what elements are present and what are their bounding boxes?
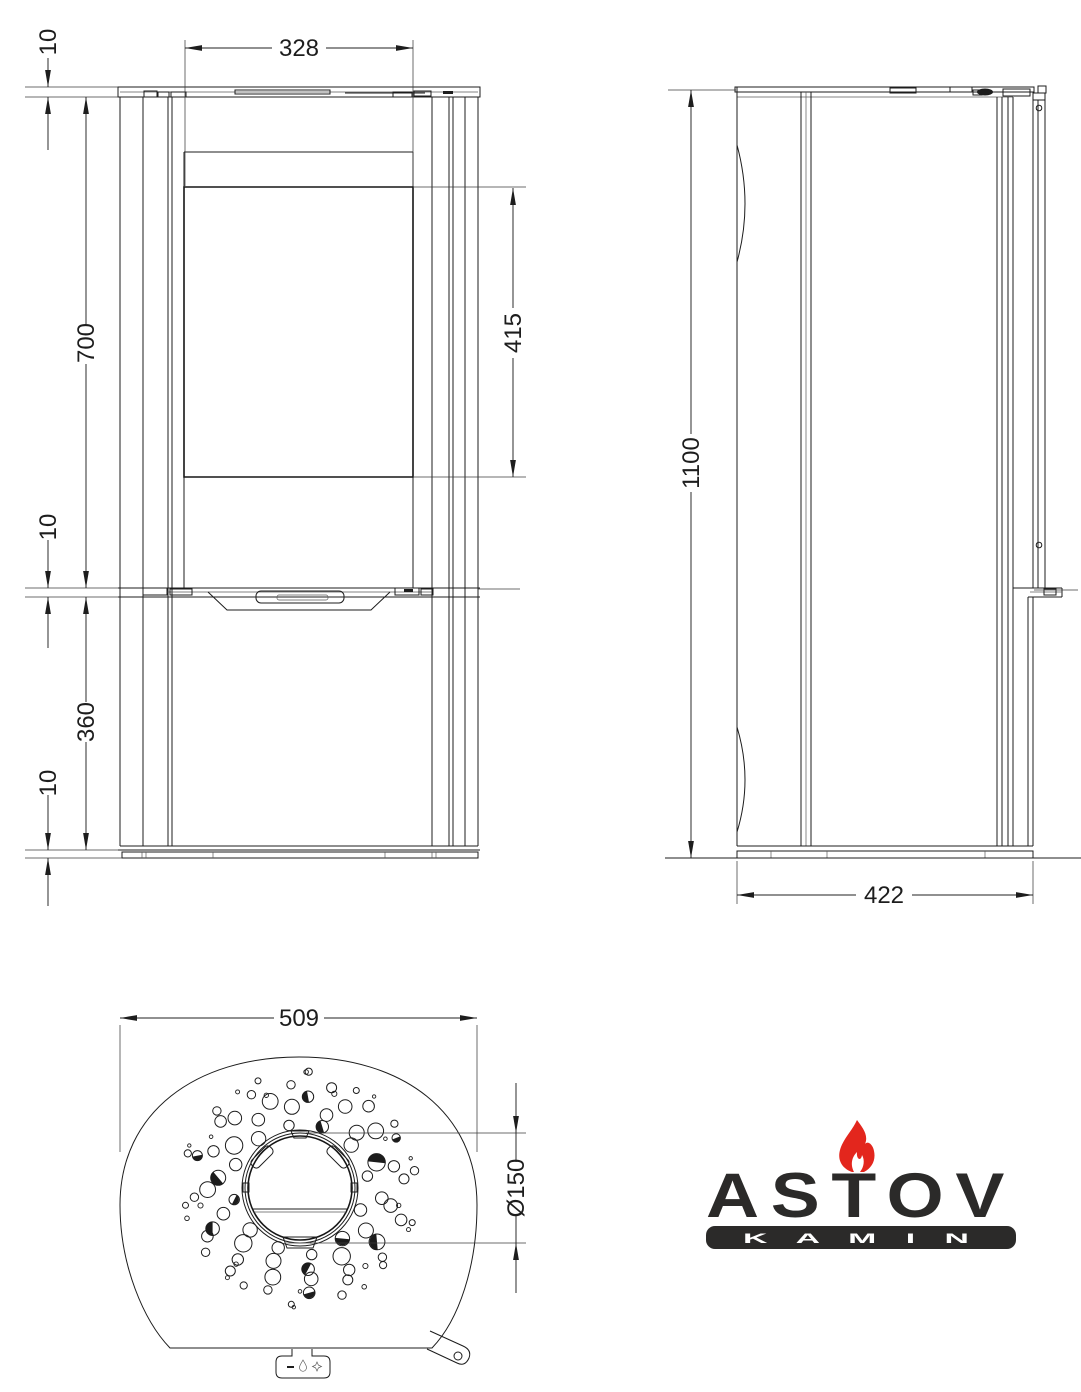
side-view bbox=[735, 86, 1062, 858]
dimension-arrow-icon bbox=[737, 892, 754, 898]
dim-lower-section: 360 bbox=[73, 702, 100, 742]
dim-top-plate: 10 bbox=[35, 29, 62, 56]
front-glass-window bbox=[184, 187, 413, 477]
side-door-edge bbox=[1033, 86, 1046, 588]
dimension-arrow-icon bbox=[45, 70, 51, 87]
vent-hole bbox=[353, 1088, 359, 1094]
dim-width: 509 bbox=[279, 1005, 319, 1032]
vent-hole bbox=[198, 1203, 203, 1208]
vent-hole bbox=[384, 1137, 388, 1141]
vent-hole bbox=[266, 1253, 281, 1268]
air-plus-icon bbox=[313, 1362, 322, 1371]
vent-hole bbox=[185, 1216, 190, 1221]
air-minus-icon bbox=[287, 1366, 294, 1368]
vent-hole bbox=[384, 1199, 398, 1213]
logo-subtitle-text: K A M I N bbox=[743, 1231, 979, 1246]
front-base bbox=[118, 846, 480, 858]
dimension-arrow-icon bbox=[45, 858, 51, 875]
vent-hole bbox=[264, 1286, 272, 1294]
dimension-arrow-icon bbox=[185, 45, 202, 51]
dimension-arrow-icon bbox=[83, 833, 89, 850]
vent-hole bbox=[247, 1091, 255, 1099]
flue-collar bbox=[242, 1130, 358, 1248]
vent-hole bbox=[284, 1120, 294, 1130]
dimension-arrows bbox=[45, 45, 1033, 1260]
dimension-arrow-icon bbox=[83, 97, 89, 114]
vent-hole bbox=[228, 1111, 242, 1125]
vent-hole bbox=[252, 1113, 265, 1126]
vent-hole bbox=[240, 1282, 247, 1289]
dimension-arrow-icon bbox=[513, 1116, 519, 1133]
vent-hole bbox=[298, 1290, 302, 1294]
dimension-arrow-icon bbox=[510, 460, 516, 477]
dimension-arrow-icon bbox=[688, 841, 694, 858]
vent-hole bbox=[320, 1109, 333, 1122]
vent-hole bbox=[288, 1301, 294, 1307]
front-top-plate-details bbox=[144, 90, 431, 97]
door-screw-icon bbox=[1036, 542, 1042, 548]
side-curved-seams bbox=[737, 145, 745, 832]
dim-flue-diameter: Ø150 bbox=[503, 1159, 530, 1218]
front-latch-mark bbox=[443, 91, 453, 94]
dimension-arrow-icon bbox=[513, 1243, 519, 1260]
dimension-arrow-icon bbox=[45, 597, 51, 614]
vent-hole bbox=[399, 1174, 409, 1184]
vent-hole bbox=[391, 1120, 398, 1127]
vent-hole bbox=[208, 1146, 219, 1157]
vent-hole bbox=[344, 1264, 355, 1275]
vent-hole bbox=[255, 1078, 261, 1084]
dimension-arrow-icon bbox=[396, 45, 413, 51]
mounting-tab bbox=[427, 1331, 470, 1364]
vent-hole bbox=[410, 1167, 418, 1175]
dimension-arrow-icon bbox=[1016, 892, 1033, 898]
vent-hole bbox=[362, 1285, 367, 1290]
dimension-arrow-icon bbox=[460, 1015, 477, 1021]
vent-hole bbox=[378, 1253, 386, 1261]
vent-hole bbox=[235, 1235, 252, 1252]
side-base bbox=[737, 846, 1033, 858]
vent-hole bbox=[183, 1202, 189, 1208]
side-front-wall bbox=[997, 97, 1013, 846]
dim-glass-height: 415 bbox=[500, 313, 527, 353]
dim-depth: 422 bbox=[864, 882, 904, 909]
vent-hole bbox=[409, 1157, 412, 1160]
vent-hole bbox=[372, 1095, 375, 1098]
vent-hole bbox=[354, 1204, 366, 1216]
dimension-arrow-icon bbox=[120, 1015, 137, 1021]
vent-hole bbox=[251, 1132, 265, 1146]
vent-hole bbox=[409, 1220, 415, 1226]
vent-hole bbox=[225, 1137, 242, 1154]
tab-hole-icon bbox=[454, 1352, 462, 1360]
vent-hole bbox=[230, 1158, 242, 1170]
vent-hole bbox=[201, 1248, 209, 1256]
dim-glass-width: 328 bbox=[279, 35, 319, 62]
vent-hole bbox=[236, 1090, 240, 1094]
flame-symbol-icon bbox=[300, 1360, 307, 1371]
vent-hole bbox=[184, 1150, 191, 1157]
vent-hole bbox=[272, 1242, 284, 1254]
dimension-arrow-icon bbox=[83, 597, 89, 614]
dim-total-height: 1100 bbox=[678, 437, 705, 489]
dimension-arrow-icon bbox=[45, 833, 51, 850]
vent-hole bbox=[363, 1263, 368, 1268]
extension-lines bbox=[25, 40, 1078, 1243]
vent-hole bbox=[217, 1207, 230, 1220]
vent-hole bbox=[343, 1275, 353, 1285]
dimension-arrow-icon bbox=[510, 188, 516, 205]
vent-hole-hatch bbox=[368, 1154, 385, 1163]
technical-drawing: 328 10 700 10 360 10 415 1100 422 509 Ø1… bbox=[0, 0, 1081, 1392]
vent-hole bbox=[338, 1100, 352, 1114]
dim-shelf: 10 bbox=[35, 514, 62, 541]
vent-hole bbox=[262, 1094, 278, 1110]
brand-logo: ASTOV K A M I N bbox=[706, 1120, 1016, 1249]
logo-brand-text: ASTOV bbox=[706, 1161, 1016, 1231]
vent-hole bbox=[225, 1266, 235, 1276]
vent-hole bbox=[190, 1193, 198, 1201]
dimension-arrow-icon bbox=[688, 90, 694, 107]
vent-hole bbox=[287, 1081, 295, 1089]
dimension-lines bbox=[48, 48, 1033, 1293]
vent-hole bbox=[338, 1291, 346, 1299]
vent-hole bbox=[407, 1228, 411, 1232]
vent-hole bbox=[200, 1182, 216, 1198]
dim-upper-section: 700 bbox=[73, 323, 100, 363]
vent-hole bbox=[209, 1135, 213, 1139]
door-screw-icon bbox=[1036, 105, 1042, 111]
vent-hole bbox=[388, 1161, 399, 1172]
plan-view bbox=[120, 1057, 477, 1378]
vent-hole bbox=[225, 1276, 229, 1280]
vent-hole bbox=[215, 1116, 227, 1128]
side-shelf-step bbox=[1013, 588, 1062, 846]
vent-hole bbox=[333, 1248, 350, 1265]
vent-hole-pattern bbox=[183, 1068, 419, 1309]
plan-outline bbox=[120, 1057, 477, 1348]
vent-hole bbox=[213, 1107, 221, 1115]
vent-hole bbox=[368, 1123, 384, 1139]
vent-hole-hatch bbox=[206, 1222, 213, 1236]
front-view bbox=[118, 87, 480, 858]
vent-hole bbox=[362, 1171, 372, 1181]
vent-hole bbox=[265, 1269, 281, 1285]
drawing-page: 328 10 700 10 360 10 415 1100 422 509 Ø1… bbox=[0, 0, 1081, 1392]
front-body-seams bbox=[120, 97, 478, 846]
vent-hole bbox=[307, 1249, 317, 1259]
air-control-lever bbox=[276, 1349, 330, 1378]
dimension-arrow-icon bbox=[45, 97, 51, 114]
vent-hole bbox=[376, 1192, 389, 1205]
vent-hole bbox=[363, 1100, 375, 1112]
vent-hole bbox=[358, 1223, 373, 1238]
vent-hole bbox=[380, 1262, 387, 1269]
vent-hole bbox=[395, 1214, 407, 1226]
dimension-arrow-icon bbox=[83, 571, 89, 588]
dimension-arrow-icon bbox=[45, 571, 51, 588]
vent-hole bbox=[284, 1099, 299, 1114]
dim-base: 10 bbox=[35, 770, 62, 797]
front-door bbox=[184, 152, 413, 588]
vent-hole bbox=[188, 1144, 191, 1147]
